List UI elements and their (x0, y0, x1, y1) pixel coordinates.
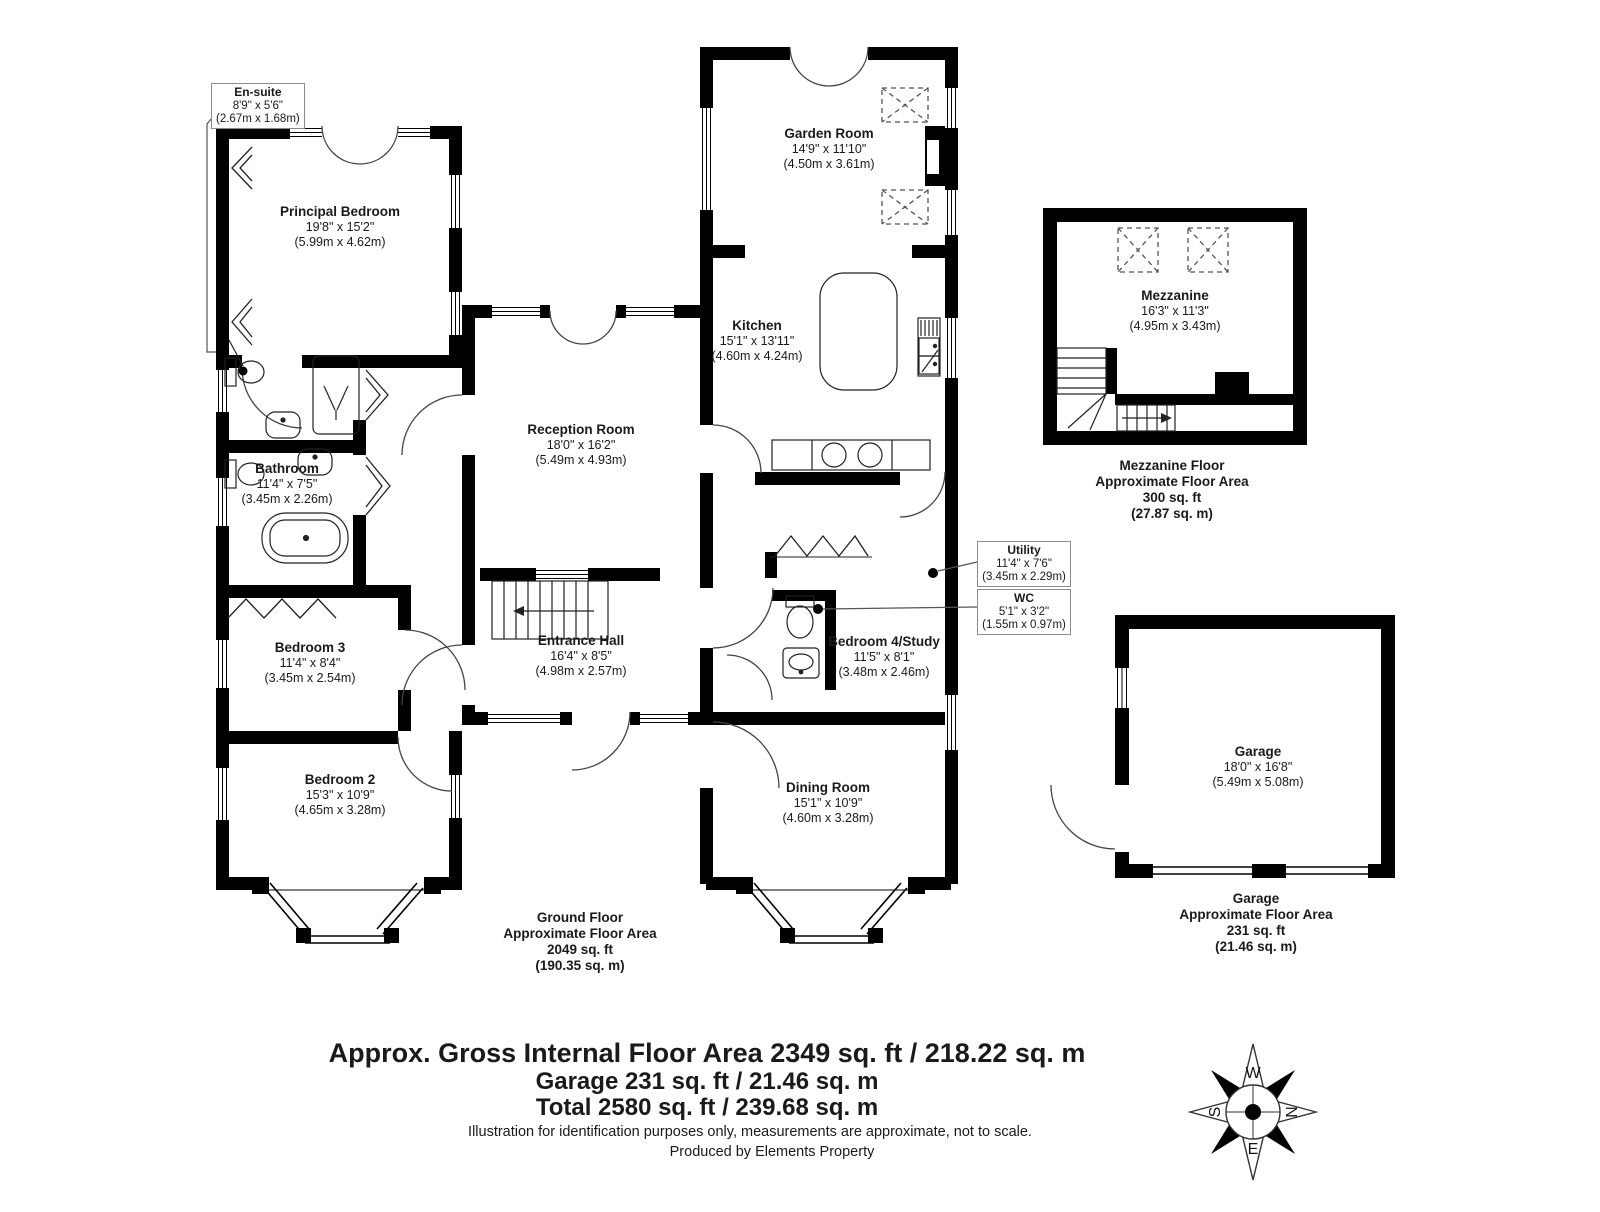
room-dim-metric: (3.45m x 2.54m) (264, 671, 355, 686)
room-dim-imperial: 15'3" x 10'9" (294, 788, 385, 803)
room-label-bedroom-4-study: Bedroom 4/Study 11'5" x 8'1" (3.48m x 2.… (828, 634, 940, 680)
room-name: Reception Room (527, 422, 634, 438)
room-name: Entrance Hall (535, 633, 626, 649)
kitchen-sink-icon (918, 318, 940, 376)
bay-window-bedroom2 (252, 877, 441, 943)
room-label-entrance-hall: Entrance Hall 16'4" x 8'5" (4.98m x 2.57… (535, 633, 626, 679)
room-dim-metric: (5.99m x 4.62m) (280, 235, 400, 250)
room-label-garden-room: Garden Room 14'9" x 11'10" (4.50m x 3.61… (783, 126, 874, 172)
floorplan-drawing (0, 0, 1600, 1212)
window-icon (449, 292, 462, 335)
room-dim-metric: (3.48m x 2.46m) (828, 665, 940, 680)
disclaimer-text: Illustration for identification purposes… (468, 1124, 1032, 1140)
wc-leader-dot (813, 604, 823, 614)
room-dim-metric: (2.67m x 1.68m) (216, 113, 300, 126)
window-icon (536, 568, 588, 581)
room-dim-metric: (1.55m x 0.97m) (982, 619, 1066, 632)
room-dim-metric: (4.60m x 4.24m) (711, 349, 802, 364)
skylight-icon (882, 88, 928, 122)
door-arcs (242, 47, 1115, 849)
room-name: Bedroom 3 (264, 640, 355, 656)
compass-west-label: W (1245, 1065, 1260, 1083)
room-dim-imperial: 18'0" x 16'2" (527, 438, 634, 453)
caption-line: (21.46 sq. m) (1179, 939, 1332, 955)
compass-east-label: E (1248, 1141, 1259, 1159)
light-point-icon (239, 367, 248, 376)
ground-floor-caption: Ground Floor Approximate Floor Area 2049… (503, 910, 656, 974)
caption-line: Garage (1179, 891, 1332, 907)
window-icon (945, 695, 958, 750)
caption-line: Approximate Floor Area (1179, 907, 1332, 923)
caption-line: Approximate Floor Area (1095, 474, 1248, 490)
room-name: WC (982, 592, 1066, 606)
room-dim-metric: (4.65m x 3.28m) (294, 803, 385, 818)
caption-line: (190.35 sq. m) (503, 958, 656, 974)
staircase-hall (492, 581, 608, 639)
window-icon (945, 88, 958, 128)
window-icon (700, 108, 713, 210)
caption-line: 2049 sq. ft (503, 942, 656, 958)
window-icon (1115, 668, 1129, 708)
window-icon (449, 175, 462, 228)
room-name: Mezzanine (1129, 288, 1220, 304)
room-label-principal-bedroom: Principal Bedroom 19'8" x 15'2" (5.99m x… (280, 204, 400, 250)
room-dim-metric: (5.49m x 5.08m) (1212, 775, 1303, 790)
room-name: Dining Room (782, 780, 873, 796)
room-name: Garage (1212, 744, 1303, 760)
room-dim-imperial: 11'4" x 7'5" (241, 477, 332, 492)
windows (216, 88, 1129, 820)
bay-window-dining (736, 877, 925, 943)
producer-text: Produced by Elements Property (670, 1144, 875, 1160)
floorplan-page: Principal Bedroom 19'8" x 15'2" (5.99m x… (0, 0, 1600, 1212)
room-label-bedroom-2: Bedroom 2 15'3" x 10'9" (4.65m x 3.28m) (294, 772, 385, 818)
room-dim-imperial: 5'1" x 3'2" (982, 606, 1066, 619)
caption-line: (27.87 sq. m) (1095, 506, 1248, 522)
room-name: Garden Room (783, 126, 874, 142)
window-icon (945, 318, 958, 378)
room-dim-imperial: 16'3" x 11'3" (1129, 304, 1220, 319)
room-name: En-suite (216, 86, 300, 100)
bathtub-icon (262, 513, 348, 563)
room-label-kitchen: Kitchen 15'1" x 13'11" (4.60m x 4.24m) (711, 318, 802, 364)
room-label-ensuite-box: En-suite 8'9" x 5'6" (2.67m x 1.68m) (211, 83, 305, 129)
kitchen-counter-icon (772, 440, 930, 470)
caption-line: Mezzanine Floor (1095, 458, 1248, 474)
room-name: Bedroom 2 (294, 772, 385, 788)
compass-south-label: S (1207, 1107, 1225, 1118)
room-label-reception-room: Reception Room 18'0" x 16'2" (5.49m x 4.… (527, 422, 634, 468)
basin-icon (783, 648, 819, 678)
summary-gross-area: Approx. Gross Internal Floor Area 2349 s… (329, 1038, 1086, 1069)
window-icon (488, 712, 560, 725)
fireplace-icon (927, 140, 939, 174)
room-dim-metric: (3.45m x 2.29m) (982, 571, 1066, 584)
window-icon (216, 370, 229, 412)
skylight-icon (1118, 228, 1158, 272)
room-name: Utility (982, 544, 1066, 558)
room-label-mezzanine: Mezzanine 16'3" x 11'3" (4.95m x 3.43m) (1129, 288, 1220, 334)
room-name: Principal Bedroom (280, 204, 400, 220)
mezzanine-floor-caption: Mezzanine Floor Approximate Floor Area 3… (1095, 458, 1248, 522)
summary-total-area: Total 2580 sq. ft / 239.68 sq. m (536, 1094, 878, 1122)
room-label-bathroom: Bathroom 11'4" x 7'5" (3.45m x 2.26m) (241, 461, 332, 507)
room-dim-imperial: 15'1" x 10'9" (782, 796, 873, 811)
room-name: Bathroom (241, 461, 332, 477)
room-dim-imperial: 14'9" x 11'10" (783, 142, 874, 157)
room-dim-imperial: 8'9" x 5'6" (216, 100, 300, 113)
caption-line: 300 sq. ft (1095, 490, 1248, 506)
window-icon (216, 478, 229, 526)
room-dim-imperial: 11'4" x 7'6" (982, 558, 1066, 571)
window-icon (492, 305, 540, 318)
room-dim-metric: (4.50m x 3.61m) (783, 157, 874, 172)
room-dim-imperial: 15'1" x 13'11" (711, 334, 802, 349)
garage-floor-caption: Garage Approximate Floor Area 231 sq. ft… (1179, 891, 1332, 955)
summary-garage-area: Garage 231 sq. ft / 21.46 sq. m (536, 1068, 879, 1096)
caption-line: Approximate Floor Area (503, 926, 656, 942)
room-dim-metric: (3.45m x 2.26m) (241, 492, 332, 507)
room-label-utility-box: Utility 11'4" x 7'6" (3.45m x 2.29m) (977, 541, 1071, 587)
window-icon (216, 640, 229, 688)
caption-line: Ground Floor (503, 910, 656, 926)
caption-line: 231 sq. ft (1179, 923, 1332, 939)
skylight-icon (1188, 228, 1228, 272)
room-dim-metric: (5.49m x 4.93m) (527, 453, 634, 468)
room-dim-metric: (4.95m x 3.43m) (1129, 319, 1220, 334)
room-dim-imperial: 11'4" x 8'4" (264, 656, 355, 671)
room-name: Kitchen (711, 318, 802, 334)
room-dim-imperial: 19'8" x 15'2" (280, 220, 400, 235)
window-icon (626, 305, 674, 318)
window-icon (945, 190, 958, 235)
room-label-garage: Garage 18'0" x 16'8" (5.49m x 5.08m) (1212, 744, 1303, 790)
window-icon (640, 712, 688, 725)
room-dim-metric: (4.98m x 2.57m) (535, 664, 626, 679)
room-dim-imperial: 16'4" x 8'5" (535, 649, 626, 664)
compass-north-label: N (1281, 1106, 1299, 1118)
utility-leader-dot (928, 568, 938, 578)
room-dim-imperial: 11'5" x 8'1" (828, 650, 940, 665)
room-label-bedroom-3: Bedroom 3 11'4" x 8'4" (3.45m x 2.54m) (264, 640, 355, 686)
window-icon (449, 775, 462, 818)
skylight-icon (882, 190, 928, 224)
room-name: Bedroom 4/Study (828, 634, 940, 650)
window-icon (216, 768, 229, 820)
toilet-icon (786, 596, 814, 638)
kitchen-island-icon (820, 273, 897, 390)
room-dim-metric: (4.60m x 3.28m) (782, 811, 873, 826)
room-label-dining-room: Dining Room 15'1" x 10'9" (4.60m x 3.28m… (782, 780, 873, 826)
room-dim-imperial: 18'0" x 16'8" (1212, 760, 1303, 775)
room-label-wc-box: WC 5'1" x 3'2" (1.55m x 0.97m) (977, 589, 1071, 635)
window-icon (398, 126, 430, 139)
